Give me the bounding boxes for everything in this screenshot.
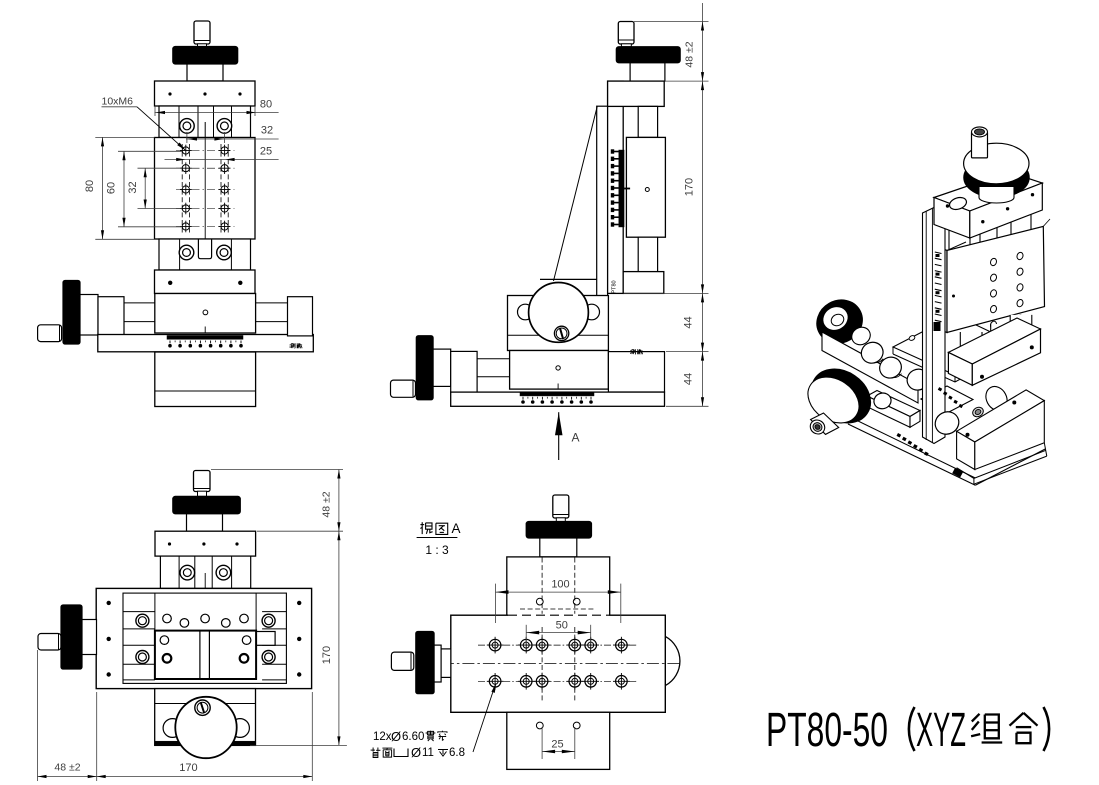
svg-text:11: 11 bbox=[422, 747, 434, 759]
svg-text:6.60: 6.60 bbox=[402, 731, 424, 743]
svg-text:A: A bbox=[571, 431, 579, 445]
svg-text:80: 80 bbox=[260, 99, 272, 111]
svg-text:PT80-50: PT80-50 bbox=[766, 704, 888, 757]
svg-text:60: 60 bbox=[106, 182, 118, 194]
svg-text:6.8: 6.8 bbox=[449, 747, 465, 759]
svg-text:Ø: Ø bbox=[411, 745, 421, 760]
svg-text:A: A bbox=[451, 521, 460, 536]
svg-text:25: 25 bbox=[260, 146, 272, 158]
svg-text:48 ±2: 48 ±2 bbox=[54, 762, 80, 774]
svg-text:12x: 12x bbox=[373, 731, 392, 743]
svg-text:44: 44 bbox=[683, 373, 695, 385]
svg-text:48 ±2: 48 ±2 bbox=[321, 491, 333, 517]
svg-text:XYZ: XYZ bbox=[916, 704, 966, 757]
svg-text:50: 50 bbox=[556, 619, 568, 631]
svg-text:170: 170 bbox=[684, 178, 696, 196]
svg-text:44: 44 bbox=[683, 316, 695, 328]
svg-text:1 : 3: 1 : 3 bbox=[425, 543, 449, 557]
svg-text:170: 170 bbox=[321, 646, 333, 664]
svg-text:PT80: PT80 bbox=[612, 280, 618, 293]
svg-text:Ø: Ø bbox=[391, 729, 401, 744]
svg-text:10xM6: 10xM6 bbox=[102, 96, 134, 108]
svg-text:32: 32 bbox=[127, 181, 139, 193]
svg-text:25: 25 bbox=[551, 739, 563, 751]
svg-text:170: 170 bbox=[179, 762, 197, 774]
svg-text:80: 80 bbox=[84, 180, 96, 192]
svg-text:48 ±2: 48 ±2 bbox=[684, 41, 696, 67]
svg-text:32: 32 bbox=[261, 125, 273, 137]
svg-text:100: 100 bbox=[551, 579, 569, 591]
